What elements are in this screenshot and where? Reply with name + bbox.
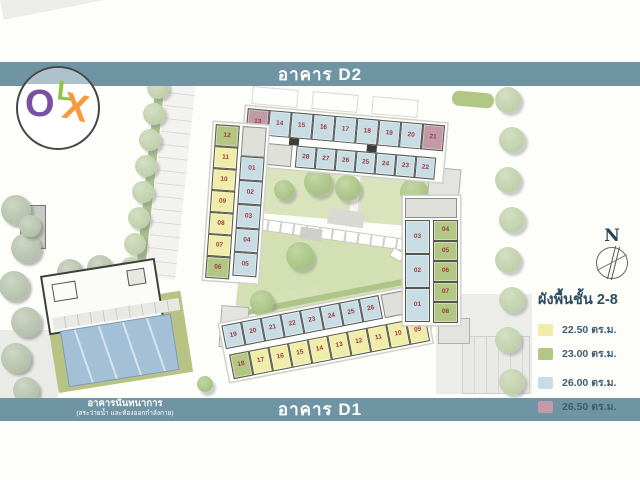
unit-09: 09 <box>210 190 235 214</box>
legend-title: ผังพื้นชั้น 2-8 <box>538 288 638 311</box>
unit-14: 14 <box>267 110 291 138</box>
annex-subtitle: (สระว่ายน้ำ และห้องออกกำลังกาย) <box>40 410 210 417</box>
wing-right-units: 0405060708 <box>433 220 458 323</box>
olx-logo: OLX <box>16 66 100 150</box>
area-legend: ผังพื้นชั้น 2-8 22.50 ตร.ม.23.00 ตร.ม.26… <box>538 288 638 422</box>
compass-rose-icon <box>596 247 628 279</box>
annex-label: อาคารนันทนาการ (สระว่ายน้ำ และห้องออกกำล… <box>40 399 210 417</box>
building-d2-title: อาคาร D2 <box>278 61 362 88</box>
tree-icon <box>495 167 521 193</box>
tree-icon <box>250 290 274 314</box>
unit-03: 03 <box>236 204 262 230</box>
unit-28: 28 <box>295 146 317 170</box>
unit-01: 01 <box>405 288 430 322</box>
compass: N <box>590 228 634 286</box>
unit-01: 01 <box>239 156 265 182</box>
room-outline <box>126 268 146 287</box>
tree-icon <box>197 376 213 392</box>
tree-icon <box>1 343 31 373</box>
wing-left-units: 030201 <box>405 220 430 323</box>
building-d2-left-wing: 12111009080706 0102030405 <box>203 122 269 283</box>
tree-icon <box>274 180 294 200</box>
unit-25: 25 <box>355 151 377 175</box>
tree-icon <box>495 327 521 353</box>
legend-item: 22.50 ตร.ม. <box>538 321 638 338</box>
tree-icon <box>143 103 165 125</box>
unit-07: 07 <box>433 282 458 303</box>
legend-label: 23.00 ตร.ม. <box>562 345 616 362</box>
unit-06: 06 <box>205 256 230 280</box>
tree-icon <box>495 87 521 113</box>
unit-17: 17 <box>333 116 357 144</box>
tree-icon <box>11 307 41 337</box>
unit-11: 11 <box>213 146 238 170</box>
tree-icon <box>135 155 157 177</box>
unit-18: 18 <box>355 118 379 146</box>
unit-27: 27 <box>315 147 337 171</box>
tree-icon <box>19 215 41 237</box>
legend-label: 22.50 ตร.ม. <box>562 321 616 338</box>
annex-title: อาคารนันทนาการ <box>40 399 210 410</box>
unit-06: 06 <box>433 261 458 282</box>
unit-03: 03 <box>405 220 430 254</box>
legend-items: 22.50 ตร.ม.23.00 ตร.ม.26.00 ตร.ม.26.50 ต… <box>538 321 638 415</box>
unit-21: 21 <box>421 124 445 152</box>
road-below-d1 <box>0 0 249 20</box>
unit-26: 26 <box>335 149 357 173</box>
compass-north-label: N <box>590 228 634 245</box>
legend-swatch <box>538 401 553 413</box>
legend-label: 26.50 ตร.ม. <box>562 398 616 415</box>
tree-icon <box>132 181 154 203</box>
tree-icon <box>0 271 29 301</box>
unit-10: 10 <box>211 168 236 192</box>
unit-19: 19 <box>377 120 401 148</box>
unit-24: 24 <box>375 153 397 177</box>
unit-16: 16 <box>311 114 335 142</box>
building-d1-right-wing: 030201 0405060708 <box>403 196 460 325</box>
legend-swatch <box>538 348 553 360</box>
unit-23: 23 <box>394 154 416 178</box>
lift-core <box>289 138 300 146</box>
stair-core <box>241 126 267 158</box>
tree-icon <box>11 233 41 263</box>
tree-icon <box>286 242 314 270</box>
unit-05: 05 <box>232 252 258 278</box>
unit-07: 07 <box>207 234 232 258</box>
unit-08: 08 <box>208 212 233 236</box>
legend-item: 23.00 ตร.ม. <box>538 345 638 362</box>
tree-icon <box>128 207 150 229</box>
room-outline <box>51 281 78 303</box>
legend-label: 26.00 ตร.ม. <box>562 374 616 391</box>
unit-15: 15 <box>289 112 313 140</box>
tree-icon <box>139 129 161 151</box>
tree-icon <box>335 175 361 201</box>
unit-12: 12 <box>214 124 239 148</box>
logo-letter-o: O <box>25 85 55 123</box>
unit-04: 04 <box>433 220 458 241</box>
tree-icon <box>499 287 525 313</box>
unit-04: 04 <box>234 228 260 254</box>
tree-icon <box>495 247 521 273</box>
unit-02: 02 <box>237 180 263 206</box>
unit-05: 05 <box>433 241 458 262</box>
unit-08: 08 <box>433 302 458 323</box>
legend-swatch <box>538 377 553 389</box>
legend-swatch <box>538 324 553 336</box>
unit-26: 26 <box>359 295 383 322</box>
stair-core <box>405 198 457 218</box>
tree-icon <box>499 127 525 153</box>
building-d1-title: อาคาร D1 <box>278 396 362 423</box>
unit-22: 22 <box>414 156 436 180</box>
legend-item: 26.50 ตร.ม. <box>538 398 638 415</box>
tree-icon <box>499 369 525 395</box>
site-plan-page: 131415161718192021 28272625242322 121110… <box>0 0 640 480</box>
unit-20: 20 <box>399 122 423 150</box>
unit-02: 02 <box>405 254 430 288</box>
tree-icon <box>499 207 525 233</box>
legend-item: 26.00 ตร.ม. <box>538 374 638 391</box>
tree-icon <box>124 233 146 255</box>
